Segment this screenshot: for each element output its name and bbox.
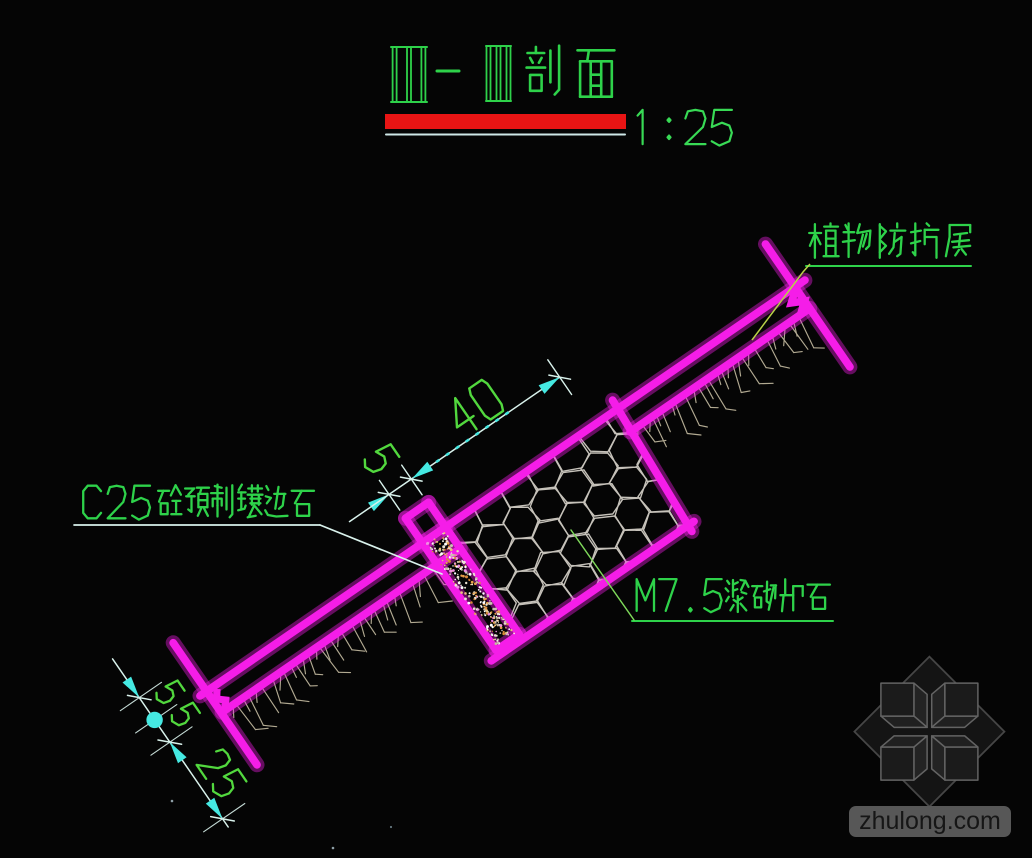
- svg-text:zhulong.com: zhulong.com: [859, 807, 1001, 835]
